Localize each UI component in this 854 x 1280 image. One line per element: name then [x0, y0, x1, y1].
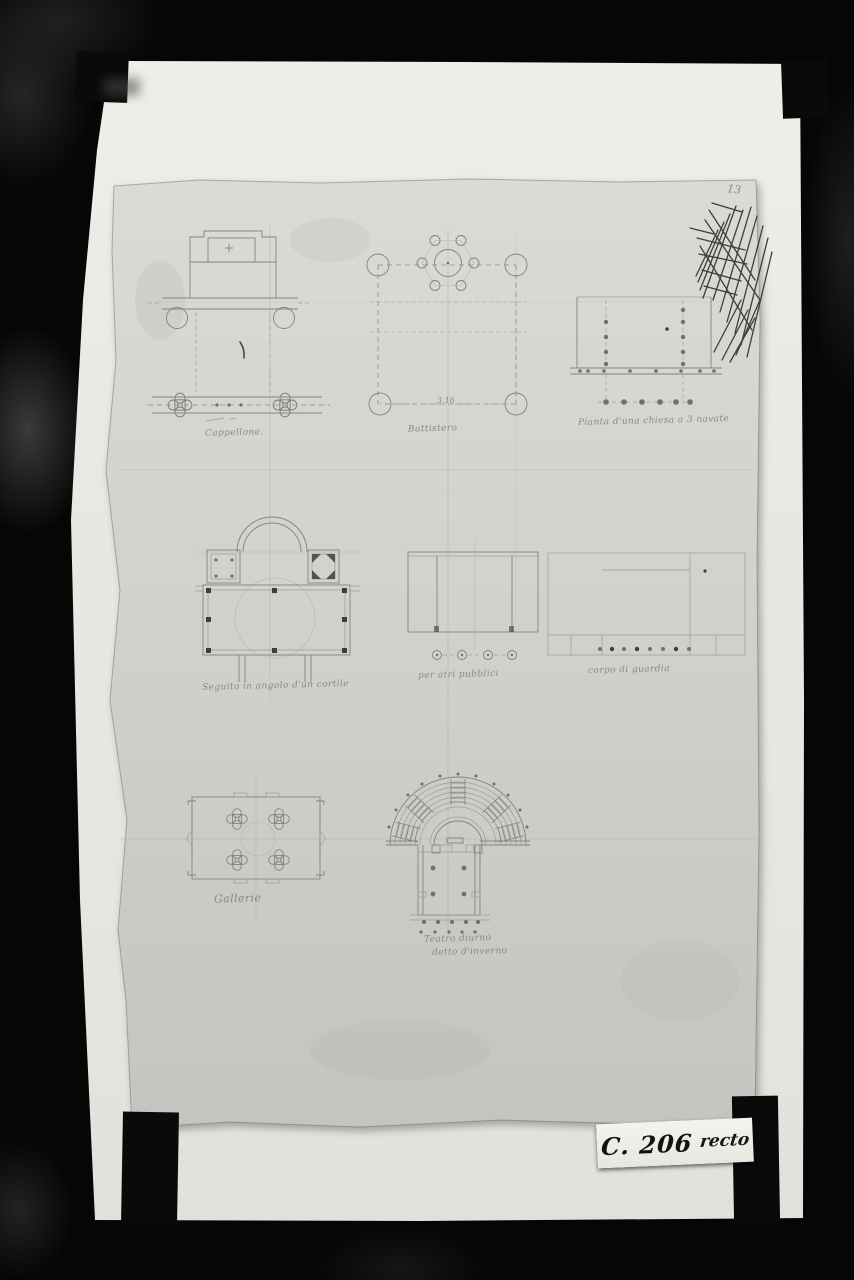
caption-corpo-di-guardia: corpo di guardia	[588, 664, 670, 676]
caption-atri-pubblici: per atri pubblici	[418, 669, 499, 681]
clamp-bottom-left	[121, 1112, 179, 1225]
caption-gallerie: Gallerie	[214, 891, 262, 905]
folio-mark: 13	[726, 182, 741, 197]
archive-label-code: C. 206	[600, 1128, 693, 1161]
caption-teatro-line1: Teatro diurno	[424, 933, 492, 945]
caption-battistero: Battistero	[408, 423, 458, 434]
clamp-top-right	[781, 59, 829, 119]
archive-label-side: recto	[698, 1130, 750, 1152]
measurement-battistero: 3.16	[437, 396, 455, 405]
clamp-top-left-smudge	[104, 78, 140, 96]
caption-teatro-line2: detto d'inverno	[432, 946, 508, 958]
caption-cappellone: Cappellone.	[205, 427, 264, 439]
archival-photograph: Cappellone. Battistero 3.16 Pianta d'una…	[0, 0, 854, 1280]
archive-label: C. 206 recto	[596, 1118, 754, 1169]
